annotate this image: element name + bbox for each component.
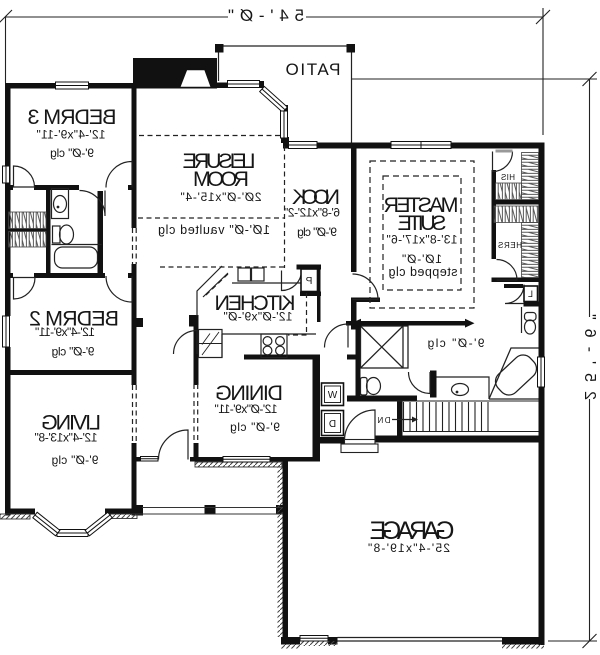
svg-text:2Ø'-Ø"x15'-4": 2Ø'-Ø"x15'-4" — [181, 190, 262, 204]
svg-text:1Ø'-Ø" vaulted clg: 1Ø'-Ø" vaulted clg — [158, 223, 270, 237]
svg-text:SUITE: SUITE — [398, 211, 447, 235]
svg-text:12'-4"x13'-8": 12'-4"x13'-8" — [35, 431, 98, 445]
svg-text:DN: DN — [377, 416, 390, 425]
svg-text:12'-4"x9'-11": 12'-4"x9'-11" — [37, 128, 106, 142]
svg-text:ROOM: ROOM — [193, 167, 249, 191]
svg-text:13'-8"x17'-6": 13'-8"x17'-6" — [387, 233, 458, 247]
svg-text:W: W — [327, 390, 337, 401]
svg-text:stepped clg: stepped clg — [388, 265, 457, 279]
svg-text:HERS: HERS — [498, 241, 522, 250]
svg-text:9'-Ø" clg: 9'-Ø" clg — [50, 146, 94, 160]
svg-text:9'-Ø" clg: 9'-Ø" clg — [428, 336, 485, 350]
svg-text:6'-8"x12'-2": 6'-8"x12'-2" — [284, 206, 340, 220]
svg-text:BEDRM 3: BEDRM 3 — [27, 105, 116, 129]
svg-text:12'-4"x9'-11": 12'-4"x9'-11" — [35, 325, 95, 339]
svg-text:1Ø'-Ø": 1Ø'-Ø" — [402, 252, 442, 266]
svg-text:HIS: HIS — [501, 173, 515, 182]
svg-text:D: D — [329, 419, 336, 430]
svg-text:9'-Ø" clg: 9'-Ø" clg — [297, 225, 337, 239]
svg-text:PATIO: PATIO — [286, 60, 341, 79]
svg-text:P: P — [305, 276, 312, 287]
svg-text:25'-4"x19'-8": 25'-4"x19'-8" — [368, 541, 450, 555]
svg-text:12'-Ø"x9'-11": 12'-Ø"x9'-11" — [215, 402, 278, 416]
svg-text:12'-Ø"x9'-Ø": 12'-Ø"x9'-Ø" — [224, 310, 293, 324]
svg-text:L: L — [528, 289, 533, 299]
svg-text:9'-Ø" clg: 9'-Ø" clg — [52, 345, 95, 359]
svg-text:9'-Ø" clg: 9'-Ø" clg — [230, 420, 280, 434]
svg-text:9'-Ø" clg: 9'-Ø" clg — [52, 453, 99, 467]
